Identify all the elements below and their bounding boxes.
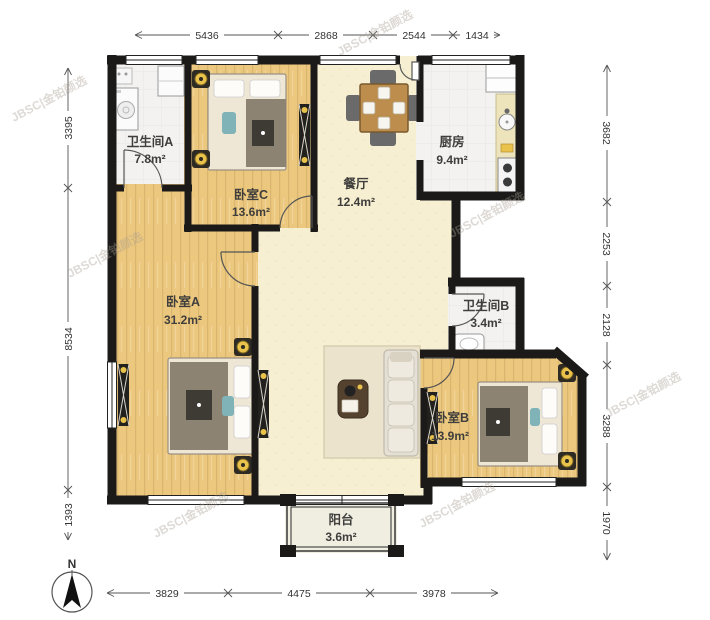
label-dining-area: 12.4m² (337, 195, 375, 209)
label-bedroom-b-name: 卧室B (435, 410, 469, 425)
dim-left-0: 3395 (63, 116, 75, 140)
label-kitchen-name: 厨房 (439, 134, 464, 149)
label-bathroom-a-area: 7.8m² (134, 152, 165, 166)
north-arrow-icon: N (52, 557, 92, 612)
dim-bottom-0: 3829 (155, 588, 179, 600)
label-dining-name: 餐厅 (342, 176, 369, 191)
washer-icon (114, 88, 138, 130)
dim-left-2: 1393 (63, 503, 75, 527)
bath-cabinet-icon (158, 66, 184, 96)
label-bedroom-c-name: 卧室C (234, 187, 268, 202)
window (320, 56, 396, 65)
dim-bottom-2: 3978 (422, 588, 446, 600)
bed-icon-bedroom-a (168, 358, 254, 454)
label-bathroom-a-name: 卫生间A (127, 134, 174, 149)
window (108, 362, 117, 428)
sofa-icon (384, 350, 418, 456)
coffee-table-icon (338, 380, 368, 418)
dim-right-1: 2253 (600, 232, 612, 256)
label-bathroom-b-name: 卫生间B (463, 298, 510, 313)
window (196, 56, 258, 65)
dim-left-1: 8534 (63, 327, 75, 351)
nightstand-icon (192, 150, 210, 168)
bed-icon-bedroom-c (208, 74, 286, 170)
dim-bottom-1: 4475 (287, 588, 311, 600)
dim-right-4: 1970 (600, 511, 612, 535)
dim-right-0: 3682 (600, 121, 612, 145)
fridge-icon (486, 64, 516, 92)
bed-icon-bedroom-b (478, 382, 562, 466)
nightstand-icon (234, 338, 252, 356)
dim-top-2: 2544 (402, 30, 426, 42)
stove-icon (498, 158, 517, 192)
label-bathroom-b-area: 3.4m² (470, 316, 501, 330)
dim-top-0: 5436 (195, 30, 219, 42)
floorplan-svg: 卫生间A 7.8m² 卧室C 13.6m² 餐厅 12.4m² 厨房 9.4m²… (0, 0, 710, 620)
label-kitchen-area: 9.4m² (436, 153, 467, 167)
watermark-text: JBSC|金铂颜选 (602, 368, 683, 420)
dim-top-1: 2868 (314, 30, 338, 42)
bath-shelf-icon (114, 68, 132, 84)
radiator-icon (118, 364, 129, 426)
label-balcony-name: 阳台 (328, 512, 353, 527)
nightstand-icon (558, 452, 576, 470)
label-bedroom-a-name: 卧室A (166, 294, 200, 309)
radiator-icon (258, 370, 269, 438)
window (126, 56, 182, 65)
label-bedroom-a-area: 31.2m² (164, 313, 202, 327)
label-balcony-area: 3.6m² (325, 530, 356, 544)
compass-label: N (68, 557, 77, 571)
kitchen-counter-icon (496, 94, 518, 194)
dim-right-2: 2128 (600, 313, 612, 337)
radiator-icon (299, 104, 310, 166)
window (432, 56, 510, 65)
nightstand-icon (234, 456, 252, 474)
nightstand-icon (192, 70, 210, 88)
floorplan-image: 卫生间A 7.8m² 卧室C 13.6m² 餐厅 12.4m² 厨房 9.4m²… (0, 0, 710, 620)
window (462, 478, 556, 487)
dim-top-3: 1434 (465, 30, 489, 42)
label-bedroom-b-area: 13.9m² (431, 429, 469, 443)
label-bedroom-c-area: 13.6m² (232, 205, 270, 219)
watermark-text: JBSC|金铂颜选 (8, 72, 89, 124)
